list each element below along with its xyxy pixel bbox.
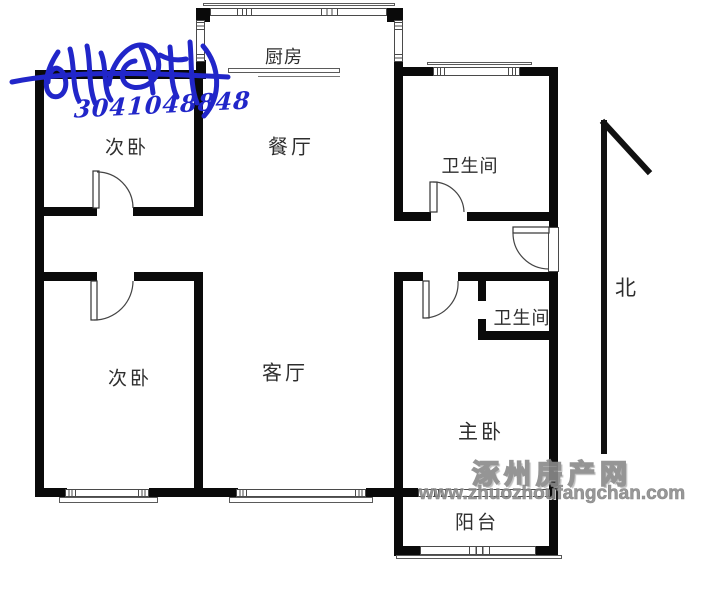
annotations-svg [0, 0, 705, 600]
door-leaf-bedroom-south [91, 281, 97, 320]
watermark-site-url: www.zhuozhoufangchan.com [419, 483, 685, 505]
door-arc-bedroom-north [97, 172, 133, 208]
door-leaf-bedroom-north [93, 171, 99, 208]
door-arc-bathroom-north [433, 182, 464, 212]
door-leaf-master [423, 281, 429, 318]
floorplan-page: 厨房 餐厅 次卧 卫生间 次卧 客厅 主卧 卫生间 阳台 北 [0, 0, 705, 600]
door-leaf-bathroom-north [430, 182, 437, 212]
door-arc-bedroom-south [94, 281, 133, 320]
door-arc-entry [513, 233, 549, 269]
door-leaf-entry [513, 227, 549, 233]
north-arrow-head [604, 123, 648, 171]
door-arcs [94, 172, 549, 320]
north-arrow [604, 123, 648, 451]
door-arc-master [426, 281, 458, 318]
door-leaves [91, 171, 549, 320]
